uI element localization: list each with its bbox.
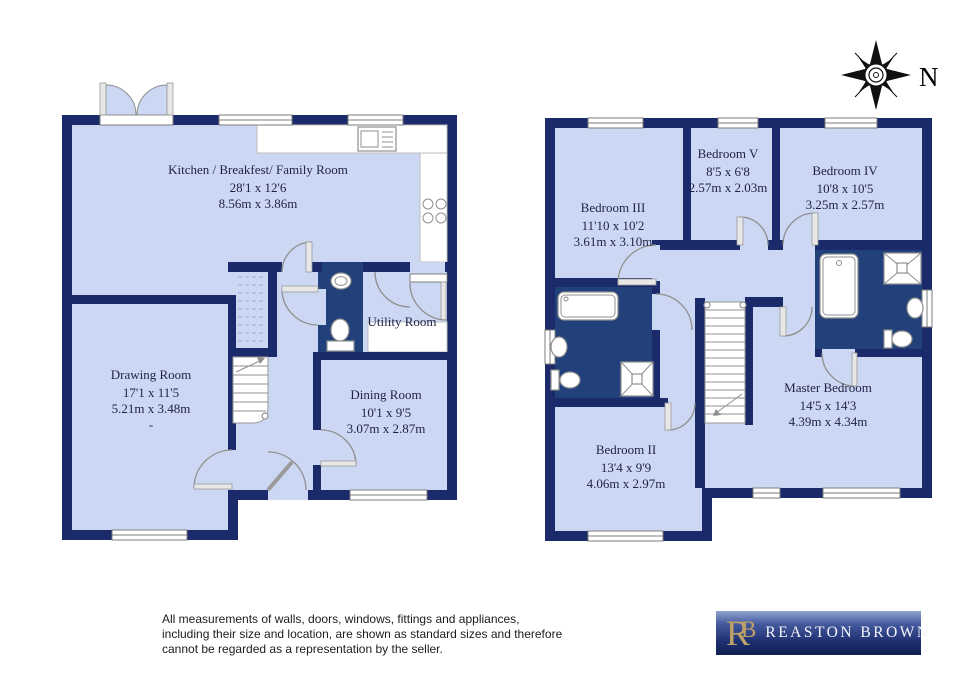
room-dimensions-metric: 3.07m x 2.87m (347, 421, 426, 437)
logo-monogram: R B (726, 615, 756, 651)
shower-icon-ensuite (884, 253, 921, 284)
room-name: Bedroom IV (806, 163, 885, 179)
room-name: Utility Room (368, 314, 437, 330)
room-name: Bedroom V (689, 146, 768, 162)
room-dimensions-metric: 4.39m x 4.34m (784, 414, 872, 430)
toilet-icon (551, 370, 580, 390)
logo-company-name: REASTON BROWN (765, 624, 930, 642)
compass-north-label: N (919, 62, 939, 92)
room-label-bedroom3: Bedroom III 11'10 x 10'2 3.61m x 3.10m (574, 200, 653, 250)
disclaimer-line: cannot be regarded as a representation b… (162, 642, 562, 657)
disclaimer-line: All measurements of walls, doors, window… (162, 612, 562, 627)
room-label-bedroom2: Bedroom II 13'4 x 9'9 4.06m x 2.97m (587, 442, 666, 492)
room-label-bedroom4: Bedroom IV 10'8 x 10'5 3.25m x 2.57m (806, 163, 885, 213)
sink-icon-ensuite (907, 298, 923, 318)
room-dimensions-metric: 8.56m x 3.86m (168, 196, 348, 212)
room-name: Bedroom III (574, 200, 653, 216)
room-dimensions-metric: 3.61m x 3.10m (574, 234, 653, 250)
disclaimer-line: including their size and location, are s… (162, 627, 562, 642)
floorplan-page: N Kitchen / Breakfest/ Family Room 28'1 … (0, 0, 980, 692)
disclaimer-text: All measurements of walls, doors, window… (162, 612, 562, 657)
floor-plan-ground (62, 83, 457, 540)
room-dimensions-metric: 4.06m x 2.97m (587, 476, 666, 492)
sink-icon (551, 337, 567, 357)
wc-sink-icon (331, 273, 351, 289)
room-name: Dining Room (347, 387, 426, 403)
room-note: - (111, 417, 192, 433)
compass-rose-icon: N (841, 40, 939, 110)
reaston-brown-logo: R B REASTON BROWN (716, 611, 921, 655)
room-dimensions-imperial: 14'5 x 14'3 (784, 398, 872, 414)
shower-icon (621, 362, 653, 396)
room-label-drawing-room: Drawing Room 17'1 x 11'5 5.21m x 3.48m - (111, 367, 192, 433)
room-name: Master Bedroom (784, 380, 872, 396)
french-doors (100, 83, 173, 125)
room-dimensions-imperial: 11'10 x 10'2 (574, 218, 653, 234)
room-label-kitchen: Kitchen / Breakfest/ Family Room 28'1 x … (168, 162, 348, 212)
bath-icon (558, 292, 618, 320)
room-dimensions-imperial: 13'4 x 9'9 (587, 460, 666, 476)
room-dimensions-imperial: 28'1 x 12'6 (168, 180, 348, 196)
room-label-utility-room: Utility Room (368, 314, 437, 332)
toilet-icon-ensuite (884, 330, 912, 348)
floorplan-drawing: N (0, 0, 980, 692)
kitchen-sink-icon (358, 127, 396, 151)
room-dimensions-imperial: 10'1 x 9'5 (347, 405, 426, 421)
bath-icon-ensuite (820, 254, 858, 318)
room-dimensions-imperial: 10'8 x 10'5 (806, 181, 885, 197)
room-label-master-bedroom: Master Bedroom 14'5 x 14'3 4.39m x 4.34m (784, 380, 872, 430)
room-dimensions-metric: 5.21m x 3.48m (111, 401, 192, 417)
room-label-dining-room: Dining Room 10'1 x 9'5 3.07m x 2.87m (347, 387, 426, 437)
room-dimensions-metric: 2.57m x 2.03m (689, 180, 768, 196)
room-label-bedroom5: Bedroom V 8'5 x 6'8 2.57m x 2.03m (689, 146, 768, 196)
room-name: Drawing Room (111, 367, 192, 383)
room-dimensions-imperial: 8'5 x 6'8 (689, 164, 768, 180)
room-name: Kitchen / Breakfest/ Family Room (168, 162, 348, 178)
room-dimensions-metric: 3.25m x 2.57m (806, 197, 885, 213)
stairs-first (704, 302, 746, 423)
room-name: Bedroom II (587, 442, 666, 458)
logo-monogram-b: B (741, 618, 756, 641)
room-dimensions-imperial: 17'1 x 11'5 (111, 385, 192, 401)
